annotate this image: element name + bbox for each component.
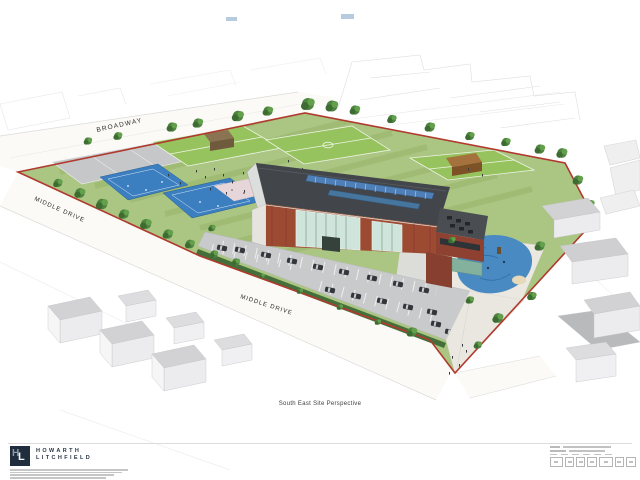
title-block-fields — [550, 457, 636, 467]
footer-divider — [8, 443, 632, 444]
entrance-doors — [322, 236, 340, 252]
title-block-field — [576, 457, 585, 467]
firm-name-line1: HOWARTH — [36, 448, 92, 455]
roof-solar-dash — [226, 17, 237, 21]
roof-solar-dash — [341, 14, 354, 19]
fine-print-line — [10, 477, 106, 479]
title-block-field — [550, 457, 563, 467]
fine-print-line — [10, 469, 128, 471]
drawing-caption: South East Site Perspective — [0, 401, 640, 407]
title-block-field — [587, 457, 596, 467]
glazed-bay — [372, 221, 402, 252]
fine-print-line — [10, 472, 122, 474]
title-block-field — [615, 457, 624, 467]
play-tower — [497, 247, 501, 254]
title-block-project-row — [550, 446, 636, 448]
fine-print-line — [10, 474, 114, 476]
title-block-drawing-row — [550, 450, 636, 452]
sand-pit — [512, 276, 526, 285]
drawing-sheet: BROADWAY MIDDLE DRIVE MIDDLE DRIVE South… — [0, 0, 640, 480]
firm-name: HOWARTH LITCHFIELD — [36, 446, 92, 462]
site-perspective-rendering: BROADWAY MIDDLE DRIVE MIDDLE DRIVE — [0, 0, 640, 480]
firm-logo-monogram: H L — [10, 446, 30, 466]
title-block-field — [565, 457, 574, 467]
firm-name-line2: LITCHFIELD — [36, 455, 92, 462]
title-block-headers — [550, 454, 636, 456]
firm-address-fine-print — [10, 469, 128, 480]
logo-letter-l: L — [18, 451, 25, 463]
title-block — [550, 446, 636, 467]
title-block-field — [626, 457, 636, 467]
title-block-field — [599, 457, 613, 467]
firm-logo-block: H L HOWARTH LITCHFIELD — [10, 446, 92, 466]
